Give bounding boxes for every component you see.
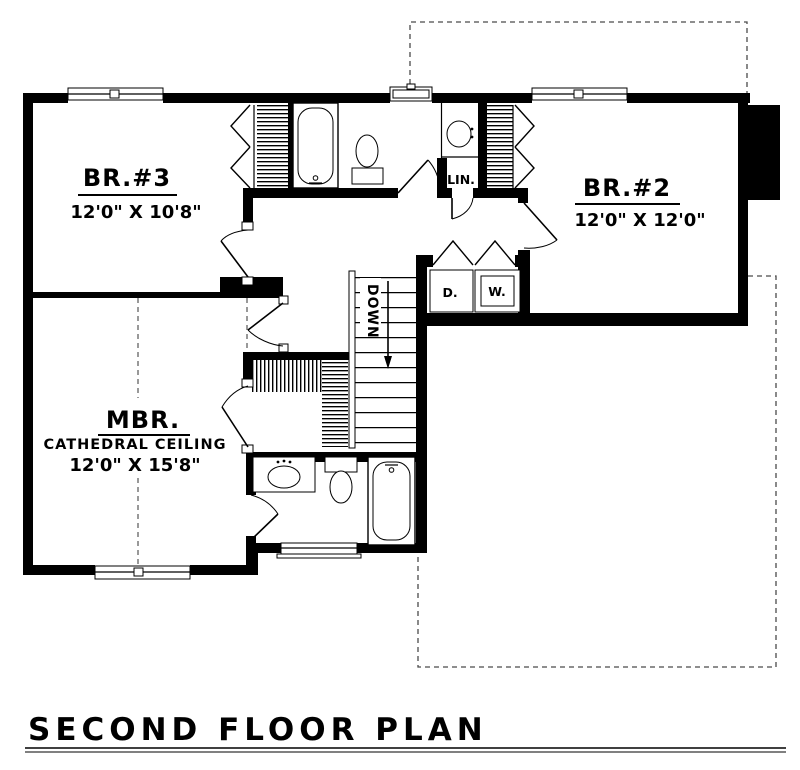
plan-title: SECOND FLOOR PLAN (25, 712, 786, 752)
master-bath-tub (368, 457, 415, 545)
master-bath-toilet (325, 457, 357, 503)
floor-plan-svg: DOWN (0, 0, 800, 770)
stairs-down-label: DOWN (364, 284, 380, 339)
laundry-closet-bifold (433, 241, 515, 265)
window-mbr (95, 566, 190, 579)
br3-door (221, 222, 253, 285)
br2-door (524, 203, 557, 248)
window-master-bath (277, 543, 361, 558)
roof-outline-dashed (410, 22, 776, 667)
mbr-label: MBR. (106, 406, 180, 434)
br2-label: BR.#2 (583, 174, 671, 202)
mbr-entry-door (248, 296, 288, 352)
hall-bath-door (398, 160, 440, 193)
window-br3 (68, 88, 163, 100)
window-hall-bath (390, 84, 432, 101)
master-bath-vanity (253, 457, 315, 492)
chimney (748, 105, 780, 200)
br2-dims: 12'0" X 12'0" (574, 210, 705, 231)
dryer-label: D. (442, 285, 457, 300)
linen-door (452, 198, 473, 219)
stairs: DOWN (349, 271, 392, 449)
mbr-closet-door (222, 379, 253, 453)
window-br2 (532, 88, 627, 100)
br3-dims: 12'0" X 10'8" (70, 202, 201, 223)
br2-closet-bifold (515, 105, 534, 188)
floor-plan-page: DOWN (0, 0, 800, 770)
linen-label: LIN. (447, 172, 475, 187)
stair-rail (349, 271, 355, 448)
mbr-ceiling-note: CATHEDRAL CEILING (44, 437, 227, 453)
mbr-dims: 12'0" X 15'8" (69, 455, 200, 476)
hall-bath-sink (447, 121, 473, 147)
master-bath-door (251, 495, 278, 540)
title-text: SECOND FLOOR PLAN (28, 712, 488, 748)
washer-label: W. (488, 284, 506, 299)
br3-closet-bifold (231, 105, 250, 188)
hall-bath-toilet (352, 135, 383, 184)
hall-bath-tub (293, 103, 338, 188)
windows (68, 84, 627, 579)
br3-label: BR.#3 (83, 164, 171, 192)
